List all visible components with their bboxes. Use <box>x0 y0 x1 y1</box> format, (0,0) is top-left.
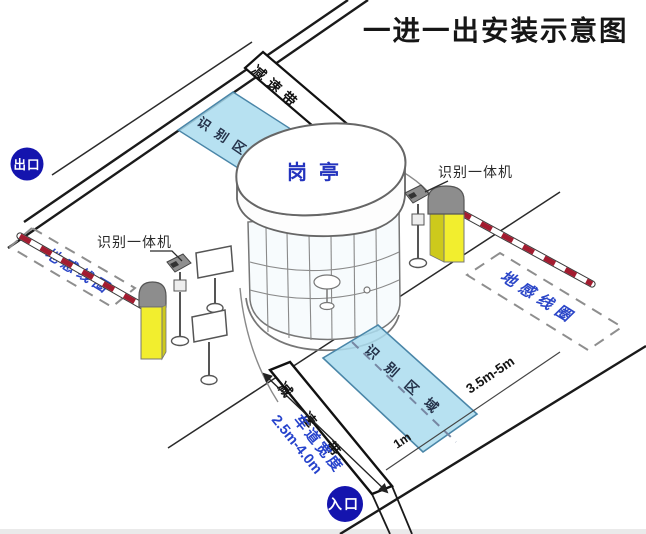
right-camera-bracket <box>412 214 424 225</box>
left-camera-bracket <box>174 280 186 291</box>
exit-badge-label: 出口 <box>13 157 40 172</box>
left-camera-icon <box>167 254 191 272</box>
right-camera-label: 识别一体机 <box>438 164 513 180</box>
installation-diagram: 减速带 识别区域 地感线圈 识别一体机 <box>0 0 646 534</box>
right-camera-icon <box>405 185 429 203</box>
left-camera-label: 识别一体机 <box>97 234 172 250</box>
left-camera-unit <box>167 254 191 346</box>
left-barrier-machine <box>139 282 166 359</box>
speed-bump-edge-extension-2 <box>392 486 412 534</box>
right-barrier-machine <box>428 186 464 262</box>
right-ground-coil: 地感线圈 <box>467 253 622 350</box>
page-bottom-edge <box>0 529 646 534</box>
display-sign-upper <box>196 246 233 313</box>
diagram-canvas: 减速带 识别区域 地感线圈 识别一体机 <box>0 0 646 534</box>
coil-distance-label: 3.5m-5m <box>463 353 517 396</box>
display-sign-lower <box>192 310 227 385</box>
left-camera-callout: 识别一体机 <box>97 234 182 261</box>
right-barrier-arm <box>460 212 592 284</box>
left-camera-base <box>172 337 189 346</box>
diagram-title: 一进一出安装示意图 <box>363 15 629 46</box>
entrance-badge: 入口 <box>327 486 363 522</box>
booth-label: 岗亭 <box>287 160 351 184</box>
exit-badge: 出口 <box>11 148 44 181</box>
right-camera-unit <box>405 185 429 268</box>
entrance-badge-label: 入口 <box>328 496 360 512</box>
right-camera-base <box>410 259 427 268</box>
